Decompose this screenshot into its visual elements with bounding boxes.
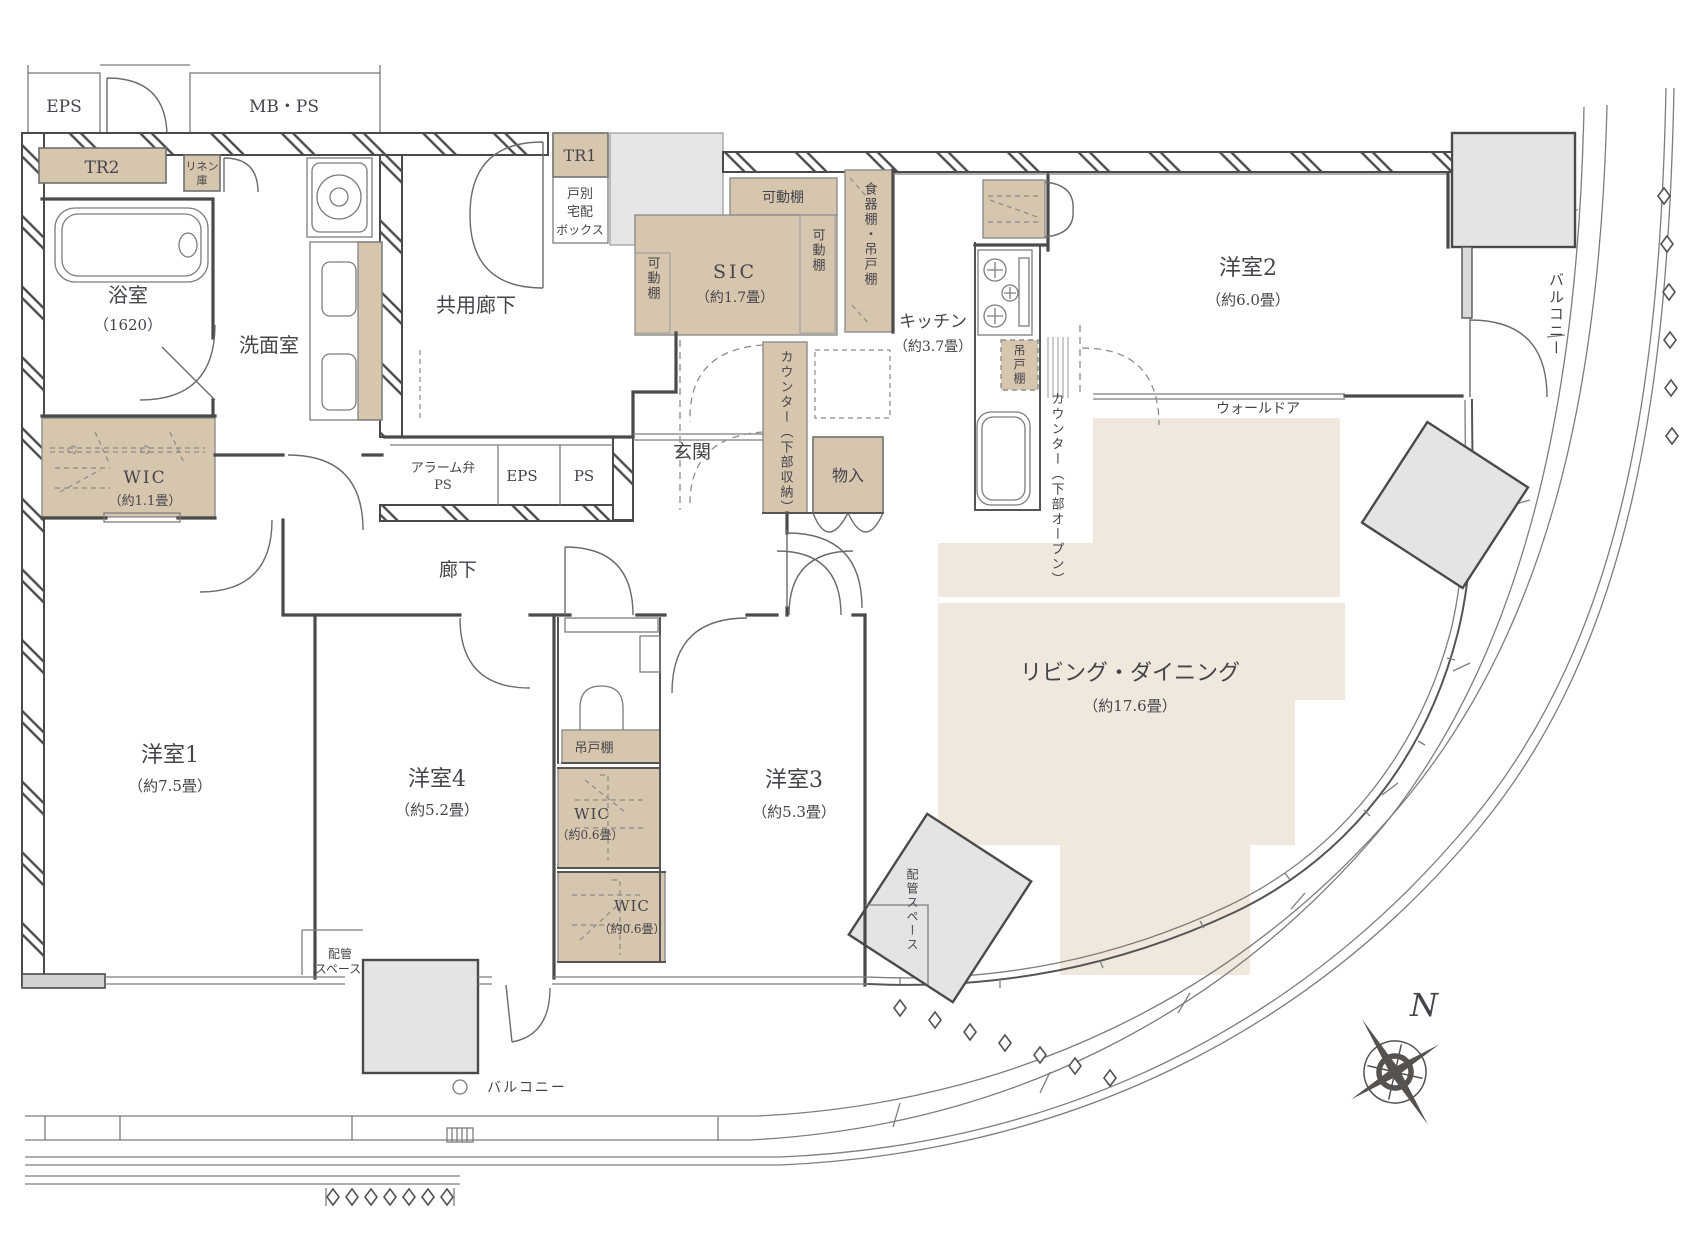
label-bath-size: （1620） <box>94 316 162 334</box>
balcony-door-right <box>1470 318 1547 397</box>
label-bedroom2: 洋室2 <box>1219 256 1277 281</box>
label-parcel-1: 戸別 <box>567 187 593 202</box>
label-kitchen: キッチン <box>899 312 967 332</box>
ld-wall-door-swing <box>1080 325 1159 425</box>
label-wic-a: WIC <box>574 805 610 823</box>
floor-plan-page: N EPS MB・PS TR2 リネン 庫 浴室 （1620） 洗面室 共用廊下… <box>0 0 1686 1256</box>
label-wall-door: ウォールドア <box>1216 401 1300 417</box>
label-shelf-left: 可動棚 <box>645 256 661 301</box>
toilet-door <box>565 547 633 615</box>
label-bedroom3-size: （約5.3畳） <box>752 803 836 821</box>
bedroom3-door <box>672 618 747 693</box>
label-living: リビング・ダイニング <box>1020 661 1240 686</box>
label-alarm-1: アラーム弁 <box>411 461 476 476</box>
label-genkan: 玄関 <box>673 441 711 463</box>
label-bedroom1-size: （約7.5畳） <box>128 777 212 795</box>
label-hang-kitchen: 吊戸棚 <box>1012 344 1026 386</box>
label-wic1: WIC <box>123 468 166 488</box>
column-right-middle <box>1362 422 1528 588</box>
balcony-drain <box>453 1080 467 1094</box>
label-balcony-bottom: バルコニー <box>487 1080 567 1096</box>
label-shelf-top: 可動棚 <box>762 190 804 206</box>
label-pipe-left-2: スペース <box>315 962 362 976</box>
label-wic-b-size: （約0.6畳） <box>598 921 665 936</box>
label-alarm-2: PS <box>434 478 452 493</box>
label-bedroom4: 洋室4 <box>408 767 466 792</box>
label-rouka: 廊下 <box>439 559 477 581</box>
label-bedroom2-size: （約6.0畳） <box>1206 291 1290 309</box>
label-eps-mid: EPS <box>506 467 537 485</box>
label-ps-mid: PS <box>574 467 594 485</box>
vanity-shelf <box>358 242 382 420</box>
label-bedroom4-size: （約5.2畳） <box>395 801 479 819</box>
label-sic: SIC <box>713 261 757 283</box>
label-mbps: MB・PS <box>249 97 319 117</box>
balcony-door-bottom <box>506 985 550 1042</box>
column-top-right <box>1452 133 1575 247</box>
label-parcel-2: 宅配 <box>567 205 593 220</box>
label-living-size: （約17.6畳） <box>1083 697 1176 715</box>
compass-north-label: N <box>1409 986 1439 1024</box>
label-eps-top: EPS <box>46 97 82 117</box>
bathtub <box>55 208 208 282</box>
label-kitchen-size: （約3.7畳） <box>894 339 972 355</box>
label-linen-2: 庫 <box>197 173 208 187</box>
label-hang-toilet: 吊戸棚 <box>574 741 613 756</box>
label-washroom: 洗面室 <box>239 333 299 357</box>
label-parcel-3: ボックス <box>556 223 604 237</box>
wic-b-box <box>558 872 665 962</box>
label-sic-size: （約1.7畳） <box>696 290 774 306</box>
counter-open-hatch <box>1048 337 1068 398</box>
column-bottom-left <box>363 960 478 1073</box>
label-bedroom1: 洋室1 <box>141 743 199 768</box>
label-wic-a-size: （約0.6畳） <box>556 827 623 842</box>
compass-rose <box>1318 992 1472 1152</box>
label-pipe-left-1: 配管 <box>328 946 352 961</box>
label-cupboard: 食器棚・吊戸棚 <box>862 181 878 287</box>
label-shared-corridor: 共用廊下 <box>436 293 516 317</box>
floor-plan-drawing: N EPS MB・PS TR2 リネン 庫 浴室 （1620） 洗面室 共用廊下… <box>0 0 1686 1256</box>
toilet <box>565 618 660 730</box>
washing-machine <box>307 158 372 237</box>
label-counter-open: カウンター（下部オープン） <box>1049 392 1065 587</box>
washroom-door <box>288 455 363 530</box>
hall-ld-door <box>787 530 862 608</box>
label-tr2: TR2 <box>85 158 120 178</box>
label-monoire: 物入 <box>832 466 864 485</box>
entrance-door <box>470 142 543 288</box>
bath-door <box>140 325 215 400</box>
label-wic1-size: （約1.1畳） <box>109 494 182 509</box>
stove <box>978 250 1032 335</box>
label-balcony-right: バルコニー <box>1547 272 1565 357</box>
linen-door <box>224 158 258 192</box>
label-bath: 浴室 <box>108 283 148 307</box>
kitchen-sink <box>977 412 1030 505</box>
bedroom4-door <box>460 618 530 688</box>
label-bedroom3: 洋室3 <box>765 768 823 793</box>
bedroom1-door <box>200 520 272 592</box>
label-counter-storage: カウンター（下部収納） <box>778 350 794 515</box>
monoire-doors <box>813 513 883 532</box>
fridge-nook <box>983 180 1045 238</box>
bedroom3-double-doors <box>777 551 853 615</box>
dashed-counter-area <box>815 350 890 418</box>
label-shelf-right: 可動棚 <box>810 228 826 273</box>
label-wic-b: WIC <box>614 897 650 915</box>
genkan-closet-swings <box>680 340 763 510</box>
label-pipe-right: 配管スペース <box>905 868 919 952</box>
label-linen-1: リネン <box>186 160 219 173</box>
label-tr1: TR1 <box>564 146 597 165</box>
